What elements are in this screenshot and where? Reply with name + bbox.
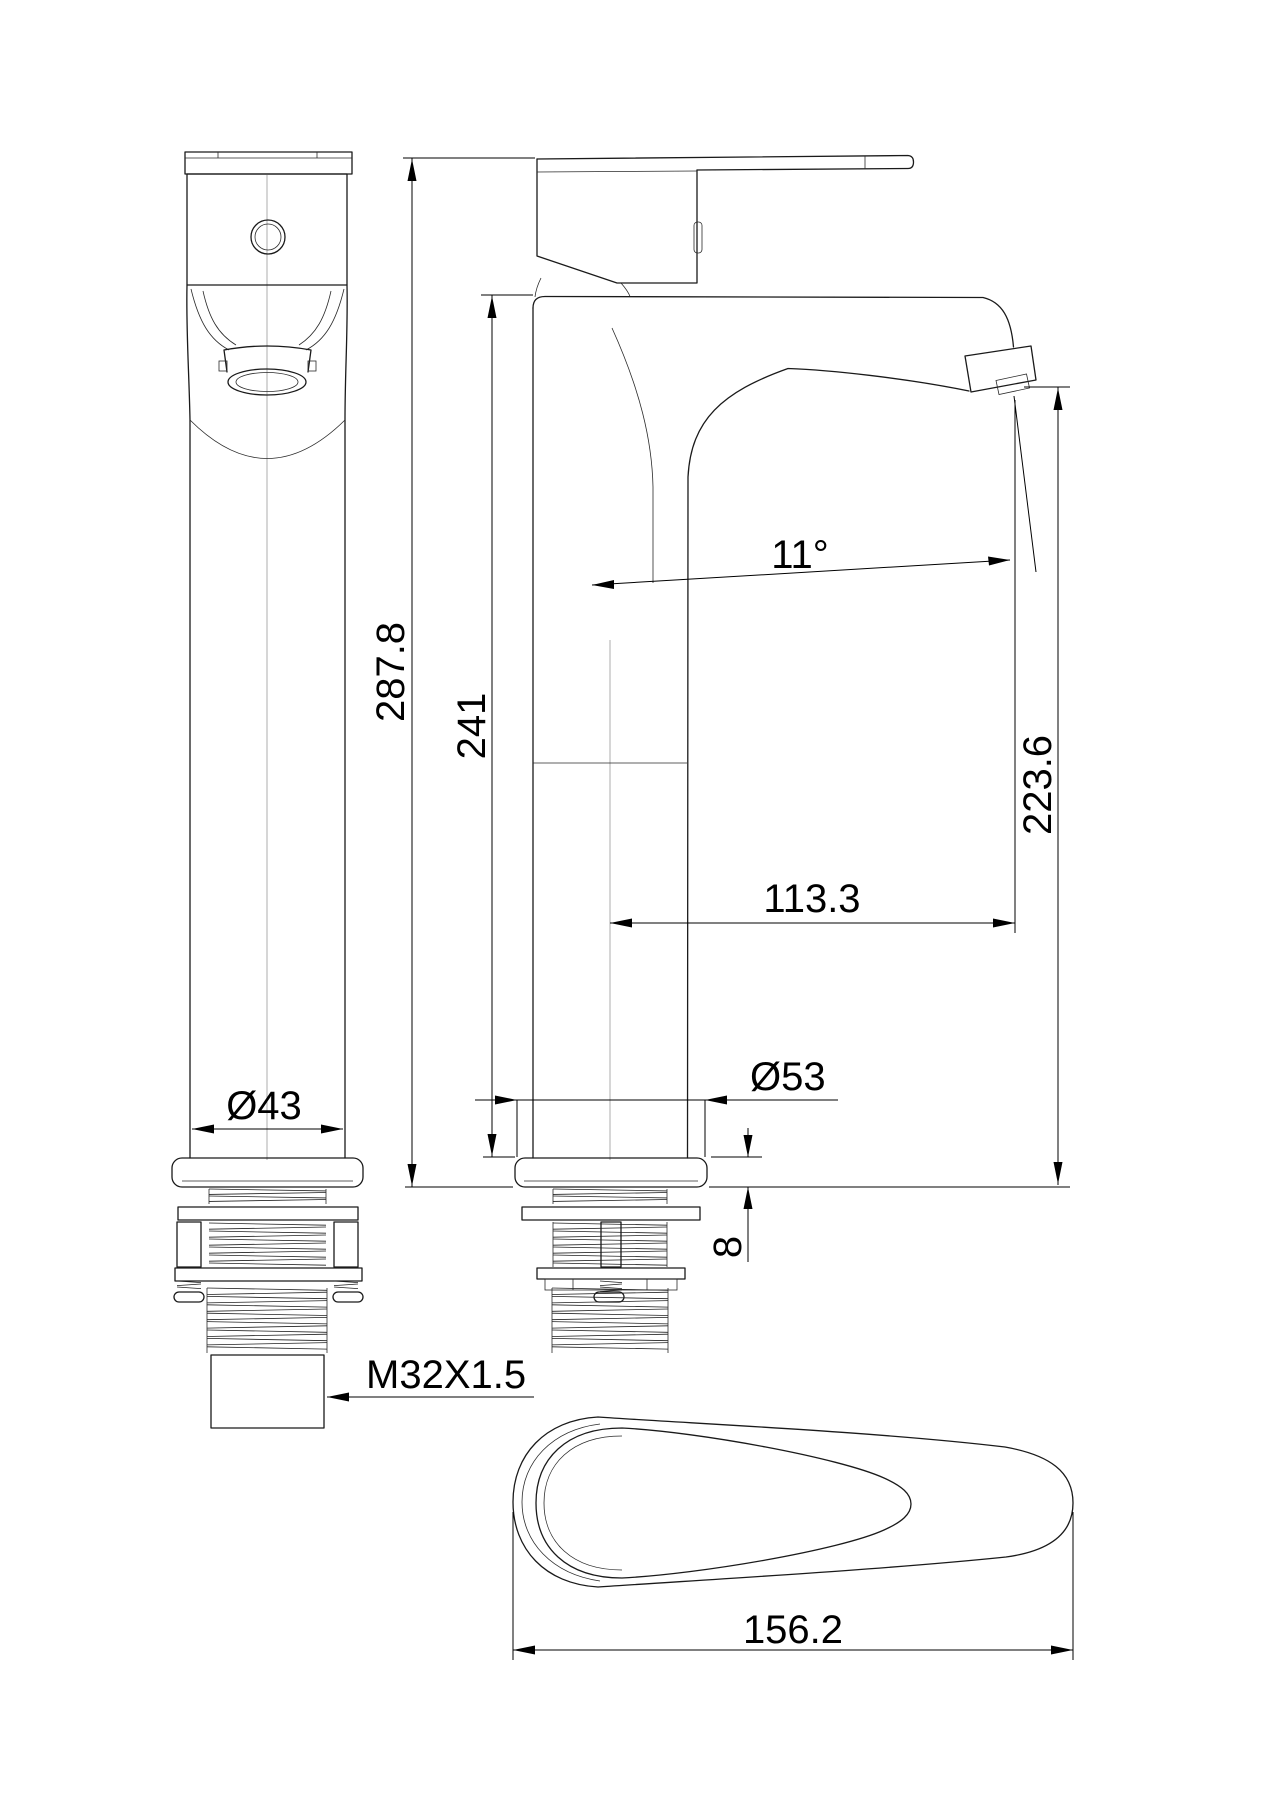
front-lever-plate (185, 152, 352, 174)
front-shank-thread (207, 1288, 327, 1349)
side-view (515, 156, 1036, 1354)
side-block-tab (694, 222, 702, 253)
side-shank-thread (552, 1288, 668, 1349)
front-base-flange (172, 1158, 363, 1187)
side-lever (537, 156, 914, 171)
handle-grip-pad-inner (544, 1436, 622, 1570)
dim-spout-height-label: 223.6 (1016, 735, 1060, 835)
technical-drawing: 287.8 241 223.6 113.3 (0, 0, 1272, 1800)
front-shank-tube (211, 1355, 324, 1428)
dim-spout-angle: 11° (592, 396, 1036, 589)
side-body-seam (612, 328, 653, 583)
dim-column-diameter-label: Ø43 (226, 1084, 302, 1128)
dim-thread-callout: M32X1.5 (327, 1353, 534, 1402)
dim-base-diameter: Ø53 (475, 1055, 838, 1157)
front-spout-shroud (191, 289, 344, 350)
handle-top-view (513, 1417, 1073, 1587)
dim-handle-length-label: 156.2 (743, 1608, 843, 1652)
handle-button-outer (251, 220, 285, 254)
handle-outline-outer (513, 1417, 1073, 1587)
drawing-page: 287.8 241 223.6 113.3 (0, 0, 1272, 1800)
side-washer (522, 1207, 700, 1220)
front-base-plate (175, 1268, 362, 1281)
front-nut-left (174, 1292, 204, 1302)
dim-body-height: 241 (450, 295, 533, 1157)
dim-spout-reach-label: 113.3 (763, 877, 860, 921)
dim-base-thickness-label: 8 (706, 1236, 750, 1258)
front-stud-right (334, 1222, 358, 1267)
front-aerator (219, 346, 316, 395)
dim-body-height-label: 241 (450, 693, 494, 760)
front-washer (178, 1207, 358, 1220)
dim-handle-length: 156.2 (513, 1512, 1073, 1660)
side-aerator (965, 346, 1036, 392)
dim-overall-height-label: 287.8 (369, 622, 413, 722)
handle-outline-mid (522, 1424, 600, 1581)
handle-button-inner (255, 224, 281, 250)
front-stud-left (177, 1222, 201, 1267)
dim-spout-reach: 113.3 (610, 400, 1015, 933)
side-body-spout (533, 297, 1036, 1159)
dim-overall-height: 287.8 (369, 158, 535, 1187)
dim-spout-angle-label: 11° (771, 533, 829, 577)
dim-base-thickness: 8 (706, 1128, 762, 1262)
side-mounting-hardware (522, 1189, 700, 1353)
handle-grip-pad (536, 1428, 911, 1578)
dim-base-diameter-label: Ø53 (750, 1055, 826, 1099)
side-handle-block (535, 159, 702, 297)
side-base-plate (537, 1268, 685, 1279)
side-base-flange (515, 1158, 707, 1187)
front-nut-right (333, 1292, 363, 1302)
dimensions: 287.8 241 223.6 113.3 (192, 158, 1073, 1660)
dim-thread-label: M32X1.5 (366, 1353, 526, 1397)
dim-column-diameter: Ø43 (192, 1084, 343, 1134)
front-shroud-bottom-seam (190, 420, 345, 459)
front-view (172, 152, 363, 1428)
front-mounting-hardware (174, 1189, 363, 1428)
